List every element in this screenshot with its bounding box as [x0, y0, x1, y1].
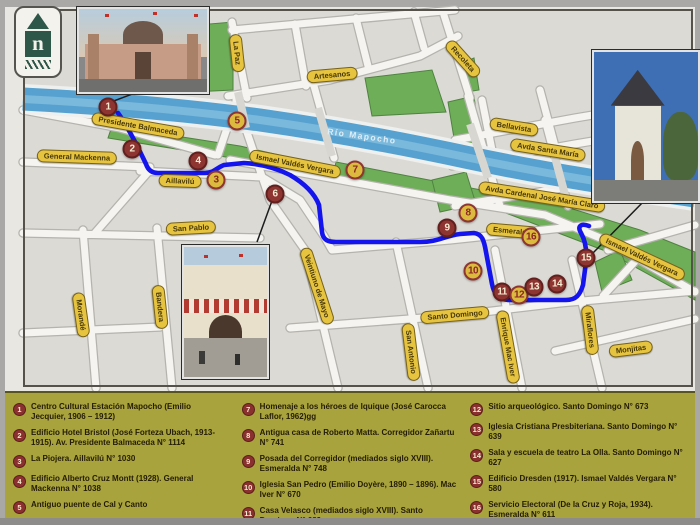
legend-marker-8: 8 [242, 429, 255, 442]
legend-item-13: 13Iglesia Cristiana Presbiteriana. Santo… [470, 422, 685, 442]
legend-text-7: Homenaje a los héroes de Iquique (José C… [260, 402, 457, 422]
screenshot-root: Río Mapocho Presidente Balmaceda General… [0, 0, 700, 525]
photo-entrance-arch [631, 141, 643, 180]
legend-marker-7: 7 [242, 403, 255, 416]
photo-flag [204, 255, 208, 258]
map-marker-11: 11 [493, 283, 512, 302]
legend-item-3: 3La Piojera. Aillavilú N° 1030 [13, 454, 228, 468]
legend-text-5: Antiguo puente de Cal y Canto [31, 500, 147, 510]
legend-text-8: Antigua casa de Roberto Matta. Corregido… [260, 428, 457, 448]
photo-flag [194, 14, 198, 17]
legend-text-12: Sitio arqueológico. Santo Domingo N° 673 [488, 402, 648, 412]
poster-bottom-edge [0, 518, 700, 525]
legend-item-8: 8Antigua casa de Roberto Matta. Corregid… [242, 428, 457, 448]
legend-text-9: Posada del Corregidor (mediados siglo XV… [260, 454, 457, 474]
photo-flag [239, 254, 243, 257]
street-label-aillavilu: Aillavilú [158, 174, 201, 188]
legend-marker-4: 4 [13, 475, 26, 488]
map-marker-1: 1 [99, 98, 118, 117]
photo-tree [663, 112, 698, 181]
legend-item-4: 4Edificio Alberto Cruz Montt (1928). Gen… [13, 474, 228, 494]
logo-letter: n [25, 31, 51, 57]
legend-item-5: 5Antiguo puente de Cal y Canto [13, 500, 228, 514]
map-marker-3: 3 [207, 171, 226, 190]
legend-text-3: La Piojera. Aillavilú N° 1030 [31, 454, 135, 464]
map-marker-13: 13 [525, 278, 544, 297]
legend-panel: 1Centro Cultural Estación Mapocho (Emili… [5, 391, 695, 518]
map-marker-2: 2 [123, 140, 142, 159]
legend-marker-14: 14 [470, 449, 483, 462]
legend-item-16: 16Servicio Electoral (De la Cruz y Roja,… [470, 500, 685, 520]
mercado-central-photo [182, 245, 269, 379]
photo-ground [184, 338, 267, 377]
north-arrow-icon [27, 13, 49, 29]
legend-text-15: Edificio Dresden (1917). Ismael Valdés V… [488, 474, 685, 494]
legend-item-10: 10Iglesia San Pedro (Emilio Doyère, 1890… [242, 480, 457, 500]
photo-figure [199, 351, 205, 364]
legend-marker-13: 13 [470, 423, 483, 436]
map-marker-8: 8 [459, 204, 478, 223]
photo-awnings [184, 299, 267, 313]
legend-item-9: 9Posada del Corregidor (mediados siglo X… [242, 454, 457, 474]
photo-entrance [135, 52, 150, 79]
map-marker-5: 5 [228, 112, 247, 131]
photo-tower-left [88, 34, 100, 79]
photo-tower-right [187, 34, 199, 79]
photo-flag [105, 14, 109, 17]
street-label-general-mackenna: General Mackenna [37, 149, 118, 165]
map-marker-9: 9 [438, 219, 457, 238]
map-marker-7: 7 [346, 161, 365, 180]
logo-hatch [25, 60, 51, 69]
legend-marker-15: 15 [470, 475, 483, 488]
legend-item-2: 2Edificio Hotel Bristol (José Forteza Ub… [13, 428, 228, 448]
legend-marker-16: 16 [470, 501, 483, 514]
legend-item-14: 14Sala y escuela de teatro La Olla. Sant… [470, 448, 685, 468]
photo-figure [235, 354, 240, 365]
map-marker-16: 16 [522, 228, 541, 247]
estacion-mapocho-photo [77, 7, 209, 94]
legend-column-1: 1Centro Cultural Estación Mapocho (Emili… [13, 402, 228, 514]
legend-item-7: 7Homenaje a los héroes de Iquique (José … [242, 402, 457, 422]
photo-flag [153, 12, 157, 15]
legend-marker-1: 1 [13, 403, 26, 416]
map-marker-4: 4 [189, 152, 208, 171]
legend-column-3: 12Sitio arqueológico. Santo Domingo N° 6… [470, 402, 685, 514]
map-publisher-logo: n [14, 6, 62, 78]
legend-text-10: Iglesia San Pedro (Emilio Doyère, 1890 –… [260, 480, 457, 500]
map-marker-6: 6 [266, 185, 285, 204]
edificio-dresden-photo [592, 50, 700, 203]
legend-marker-2: 2 [13, 429, 26, 442]
map-marker-15: 15 [577, 249, 596, 268]
legend-text-4: Edificio Alberto Cruz Montt (1928). Gene… [31, 474, 228, 494]
legend-marker-12: 12 [470, 403, 483, 416]
legend-item-1: 1Centro Cultural Estación Mapocho (Emili… [13, 402, 228, 422]
legend-text-1: Centro Cultural Estación Mapocho (Emilio… [31, 402, 228, 422]
street-label-san-pablo: San Pablo [166, 220, 217, 236]
photo-street [79, 79, 207, 92]
legend-text-14: Sala y escuela de teatro La Olla. Santo … [488, 448, 685, 468]
legend-text-13: Iglesia Cristiana Presbiteriana. Santo D… [488, 422, 685, 442]
map-marker-10: 10 [464, 262, 483, 281]
legend-text-16: Servicio Electoral (De la Cruz y Roja, 1… [488, 500, 685, 520]
legend-marker-3: 3 [13, 455, 26, 468]
legend-item-12: 12Sitio arqueológico. Santo Domingo N° 6… [470, 402, 685, 416]
legend-item-15: 15Edificio Dresden (1917). Ismael Valdés… [470, 474, 685, 494]
legend-marker-5: 5 [13, 501, 26, 514]
legend-marker-9: 9 [242, 455, 255, 468]
photo-street [594, 180, 698, 201]
photo-sky [184, 247, 267, 265]
legend-marker-10: 10 [242, 481, 255, 494]
legend-column-2: 7Homenaje a los héroes de Iquique (José … [242, 402, 457, 514]
map-marker-14: 14 [548, 275, 567, 294]
legend-text-2: Edificio Hotel Bristol (José Forteza Uba… [31, 428, 228, 448]
